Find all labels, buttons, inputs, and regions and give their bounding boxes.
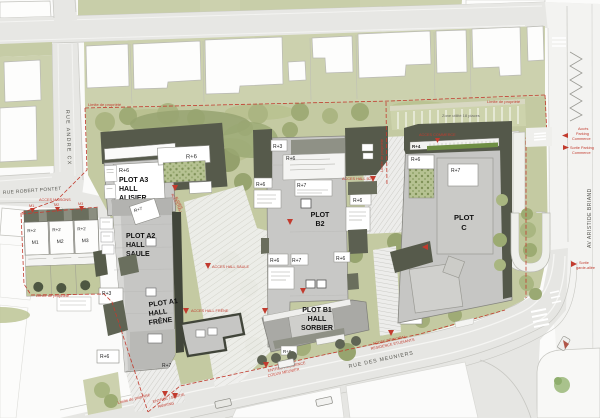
svg-text:M1: M1 [32, 240, 39, 246]
svg-text:R+6: R+6 [119, 168, 129, 174]
svg-text:HALL: HALL [308, 316, 327, 323]
svg-text:M3: M3 [78, 202, 83, 206]
svg-text:R+6: R+6 [411, 157, 421, 163]
svg-text:Commerce: Commerce [572, 151, 591, 155]
svg-text:AV ARISTIDE BRIAND: AV ARISTIDE BRIAND [587, 188, 593, 248]
svg-text:R+2: R+2 [27, 228, 36, 233]
svg-text:ACCES COMMERCE: ACCES COMMERCE [419, 133, 456, 137]
svg-text:R+6: R+6 [186, 154, 198, 161]
svg-text:M2: M2 [57, 239, 64, 245]
svg-text:SORBIER: SORBIER [301, 325, 333, 332]
svg-text:R+7: R+7 [451, 168, 461, 174]
svg-text:garde-allée: garde-allée [576, 266, 595, 270]
svg-text:R+6: R+6 [353, 198, 363, 204]
svg-text:R+6: R+6 [336, 256, 346, 262]
svg-text:R+6: R+6 [256, 182, 266, 188]
svg-text:Limite de propriété: Limite de propriété [36, 293, 70, 298]
svg-text:R+6: R+6 [100, 354, 110, 360]
svg-text:Sortie Parking: Sortie Parking [570, 146, 594, 150]
svg-text:Limite de propriété: Limite de propriété [88, 102, 122, 107]
svg-text:HALL: HALL [126, 242, 145, 249]
svg-text:PLOT A2: PLOT A2 [126, 233, 155, 240]
svg-text:R+7: R+7 [162, 363, 172, 369]
svg-text:Limite de propriété: Limite de propriété [379, 138, 384, 172]
svg-text:R+7: R+7 [292, 258, 302, 264]
svg-text:R+2: R+2 [52, 227, 61, 232]
svg-text:M3: M3 [82, 238, 89, 244]
svg-text:M1: M1 [29, 204, 34, 208]
svg-text:Parking: Parking [576, 132, 589, 136]
svg-text:PLOT: PLOT [454, 213, 474, 222]
svg-text:ACCES HALL B2: ACCES HALL B2 [342, 177, 371, 181]
svg-text:M2: M2 [54, 203, 59, 207]
svg-text:PLOT B1: PLOT B1 [302, 307, 332, 314]
svg-text:B2: B2 [316, 221, 325, 228]
svg-text:HALL: HALL [119, 186, 138, 193]
svg-text:Commerce: Commerce [572, 137, 591, 141]
svg-text:C: C [461, 223, 467, 232]
svg-text:Zone utilité 18 places: Zone utilité 18 places [442, 113, 480, 118]
svg-text:ACCES HALL SAULE: ACCES HALL SAULE [212, 265, 249, 269]
svg-text:PLOT: PLOT [311, 212, 330, 219]
svg-text:R+3: R+3 [273, 144, 283, 150]
svg-text:R+2: R+2 [77, 226, 86, 231]
svg-text:R+7: R+7 [297, 183, 307, 189]
svg-text:R+6: R+6 [286, 156, 296, 162]
svg-text:Sortie: Sortie [579, 261, 589, 265]
svg-text:R+4: R+4 [412, 144, 421, 149]
svg-text:ACCES MAISONS: ACCES MAISONS [39, 198, 71, 202]
svg-text:ACCES HALL FRÊNE: ACCES HALL FRÊNE [191, 308, 229, 313]
svg-text:Accès: Accès [578, 127, 588, 131]
svg-text:Limite de propriété: Limite de propriété [487, 99, 521, 104]
svg-text:PLOT A3: PLOT A3 [119, 177, 148, 184]
svg-text:R+6: R+6 [270, 258, 280, 264]
